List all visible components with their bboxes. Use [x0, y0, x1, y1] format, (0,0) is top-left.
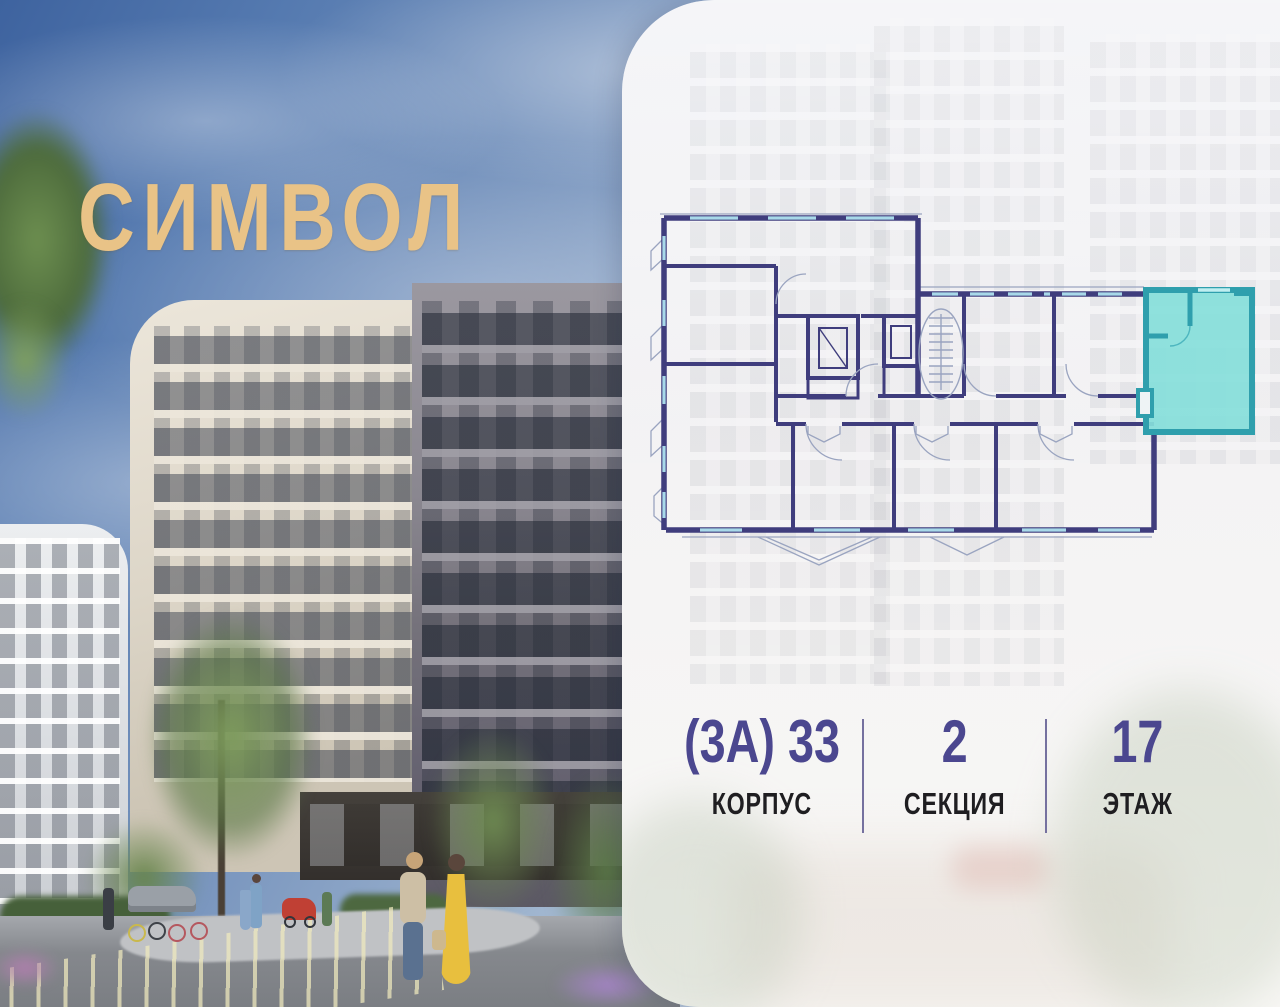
floor-value: 17: [1111, 710, 1163, 773]
plan-walls: [664, 218, 1154, 530]
woman-left-jeans: [403, 922, 423, 980]
floor-label: ЭТАЖ: [1102, 786, 1172, 822]
woman-left-head: [406, 852, 423, 869]
elevator-shafts: [808, 316, 918, 398]
person-dark: [103, 888, 114, 930]
parked-car: [128, 886, 196, 912]
bicycle-wheel-yellow: [128, 924, 146, 942]
highlighted-apartment[interactable]: [1138, 287, 1252, 432]
bicycle-wheel: [148, 922, 166, 940]
unit-info-row: (3А) 33 КОРПУС 2 СЕКЦИЯ 17 ЭТАЖ: [662, 710, 1228, 842]
person-blue-shirt: [250, 884, 262, 928]
woman-yellow-head: [448, 854, 465, 871]
section-label: СЕКЦИЯ: [904, 786, 1005, 822]
stairwell: [919, 309, 963, 399]
apartment-info-panel: (3А) 33 КОРПУС 2 СЕКЦИЯ 17 ЭТАЖ: [622, 0, 1280, 1007]
corpus-label: КОРПУС: [712, 786, 812, 822]
corpus-value: (3А) 33: [684, 710, 840, 773]
woman-left-jacket: [400, 872, 426, 924]
section-value: 2: [942, 710, 968, 773]
person-green: [322, 892, 332, 926]
page: СИМВОЛ: [0, 0, 1280, 1007]
floor-plan: [646, 204, 1268, 576]
brand-logo: СИМВОЛ: [78, 170, 471, 266]
moped-wheel-front: [284, 916, 296, 928]
bicycle-wheel-pink: [168, 924, 186, 942]
person-blue-skirt: [240, 890, 251, 930]
floor-column: 17 ЭТАЖ: [1047, 710, 1228, 842]
section-column: 2 СЕКЦИЯ: [864, 710, 1045, 842]
person-head: [252, 874, 261, 883]
corpus-column: (3А) 33 КОРПУС: [662, 710, 862, 842]
bicycle-wheel-pink2: [190, 922, 208, 940]
shopping-bag: [432, 930, 446, 950]
moped-wheel-rear: [304, 916, 316, 928]
